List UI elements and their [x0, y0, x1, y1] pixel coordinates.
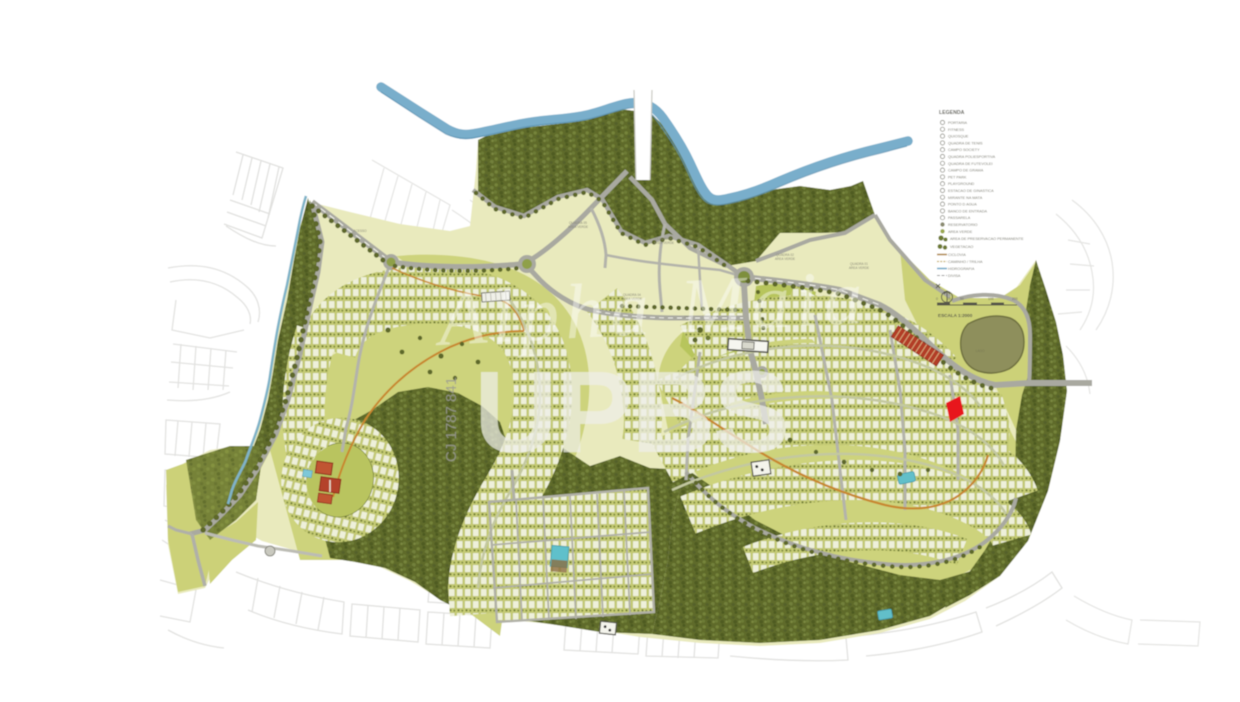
svg-text:PONTO D AGUA: PONTO D AGUA: [948, 203, 977, 207]
svg-text:CAMPO SOCIETY: CAMPO SOCIETY: [948, 148, 980, 152]
svg-text:VEGETACAO: VEGETACAO: [950, 245, 973, 249]
svg-text:QUADRA POLIESPORTIVA: QUADRA POLIESPORTIVA: [948, 155, 996, 159]
svg-text:HIDROGRAFIA: HIDROGRAFIA: [948, 267, 975, 271]
svg-text:200: 200: [1012, 297, 1018, 301]
svg-text:LAGO: LAGO: [976, 349, 985, 353]
svg-text:CAMPO DE GRAMA: CAMPO DE GRAMA: [948, 169, 984, 173]
svg-text:ESTACAO DE GINASTICA: ESTACAO DE GINASTICA: [948, 189, 994, 193]
svg-text:QUADRA DE FUTEVOLEI: QUADRA DE FUTEVOLEI: [948, 162, 993, 166]
svg-text:ACESSO: ACESSO: [353, 229, 367, 233]
svg-text:50: 50: [960, 297, 964, 301]
svg-text:LEGENDA: LEGENDA: [939, 110, 965, 116]
svg-text:PET PARK: PET PARK: [948, 175, 967, 179]
svg-text:QUIOSQUE: QUIOSQUE: [948, 135, 969, 139]
svg-text:AREA VERDE: AREA VERDE: [948, 230, 973, 234]
svg-text:0: 0: [936, 297, 938, 301]
svg-text:PORTARIA: PORTARIA: [948, 121, 968, 125]
svg-text:AREA VERDE: AREA VERDE: [568, 225, 588, 229]
svg-text:ESCALA 1:2000: ESCALA 1:2000: [938, 313, 973, 318]
svg-text:UPBS: UPBS: [474, 347, 788, 477]
svg-text:AREA DE PRESERVACAO PERMANENTE: AREA DE PRESERVACAO PERMANENTE: [950, 237, 1024, 241]
svg-text:DIVISA: DIVISA: [948, 274, 961, 278]
svg-text:FITNESS: FITNESS: [948, 128, 965, 132]
svg-text:CAMINHO / TRILHA: CAMINHO / TRILHA: [948, 260, 983, 264]
svg-text:PLAYGROUND: PLAYGROUND: [948, 182, 975, 186]
svg-text:RESERVATORIO: RESERVATORIO: [948, 223, 978, 227]
svg-text:CICLOVIA: CICLOVIA: [948, 253, 966, 257]
svg-text:BANCO DE ENTRADA: BANCO DE ENTRADA: [948, 209, 987, 213]
svg-text:QUADRA DE TENIS: QUADRA DE TENIS: [948, 141, 983, 145]
svg-text:AREA VERDE: AREA VERDE: [654, 241, 674, 245]
svg-text:PASSARELA: PASSARELA: [948, 216, 971, 220]
svg-text:MIRANTE NA MATA: MIRANTE NA MATA: [948, 196, 983, 200]
svg-text:25: 25: [947, 297, 951, 301]
svg-text:100: 100: [988, 297, 994, 301]
svg-text:CJ 1787 841: CJ 1787 841: [443, 377, 460, 462]
